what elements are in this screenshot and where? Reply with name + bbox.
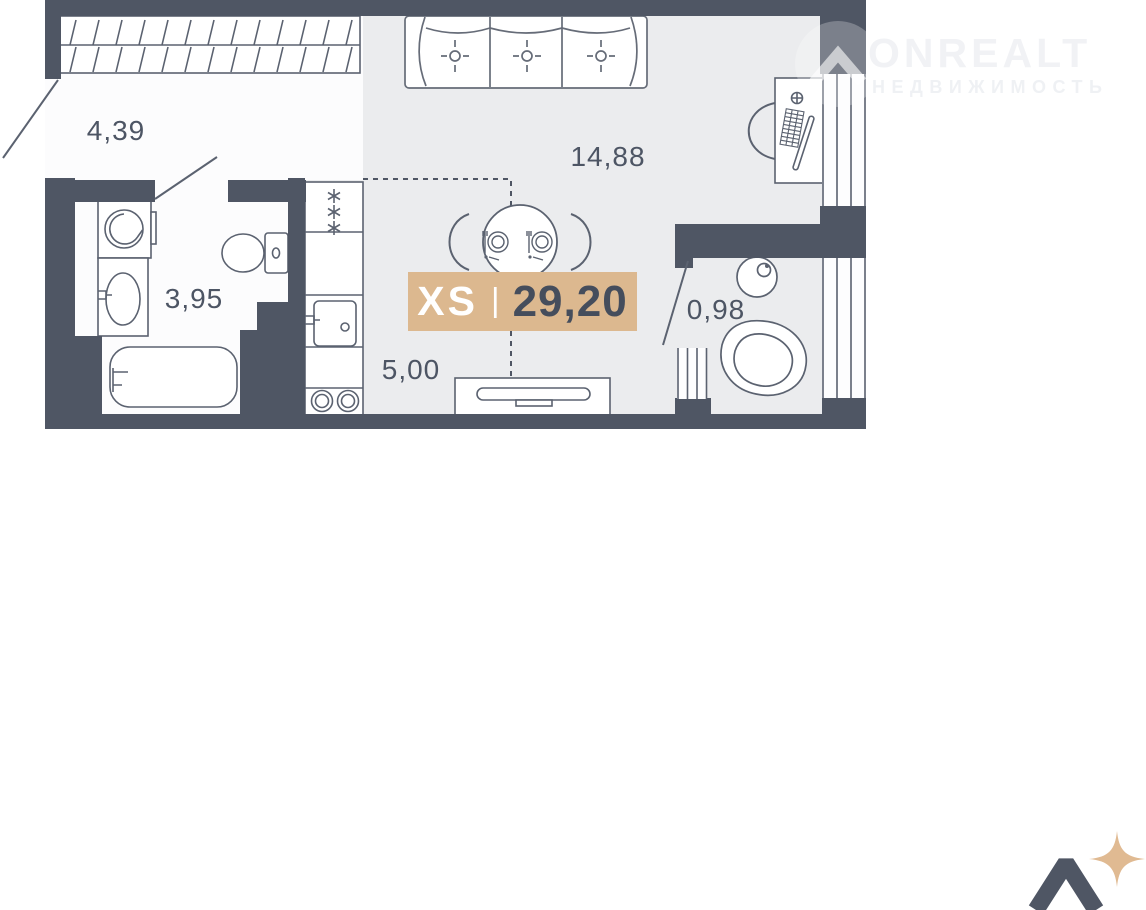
bathtub bbox=[110, 347, 237, 407]
balcony-stool bbox=[737, 257, 777, 297]
tv-stand bbox=[455, 378, 610, 415]
window-balcony-partition bbox=[677, 348, 707, 399]
toilet bbox=[222, 233, 288, 273]
floor-plan-drawing bbox=[0, 0, 1146, 910]
bathroom-sink bbox=[98, 258, 148, 336]
badge-divider: | bbox=[491, 281, 500, 319]
sparkle-icon bbox=[1089, 831, 1145, 887]
badge-area-value: 29,20 bbox=[513, 277, 628, 327]
room-label-bathroom: 3,95 bbox=[165, 283, 224, 315]
kitchen-counter bbox=[305, 182, 363, 415]
room-label-living-room: 14,88 bbox=[570, 141, 645, 173]
brand-tagline: НЕДВИЖИМОСТЬ bbox=[872, 77, 1108, 98]
room-label-hallway: 4,39 bbox=[87, 115, 146, 147]
badge-size-class: XS bbox=[417, 278, 478, 325]
window-right-bottom bbox=[822, 258, 866, 398]
dining-table bbox=[483, 205, 557, 279]
floor-plan-page: 4,39 14,88 3,95 5,00 0,98 XS | 29,20 ONR… bbox=[0, 0, 1146, 910]
room-label-kitchen: 5,00 bbox=[382, 354, 441, 386]
room-label-balcony: 0,98 bbox=[687, 294, 746, 326]
wardrobe bbox=[58, 16, 360, 73]
sofa bbox=[405, 16, 647, 88]
lambda-mark bbox=[1036, 863, 1096, 910]
agency-logo bbox=[1012, 818, 1146, 910]
unit-size-badge: XS | 29,20 bbox=[408, 272, 637, 331]
brand-name: ONREALT bbox=[868, 30, 1091, 77]
washing-machine bbox=[98, 200, 156, 258]
